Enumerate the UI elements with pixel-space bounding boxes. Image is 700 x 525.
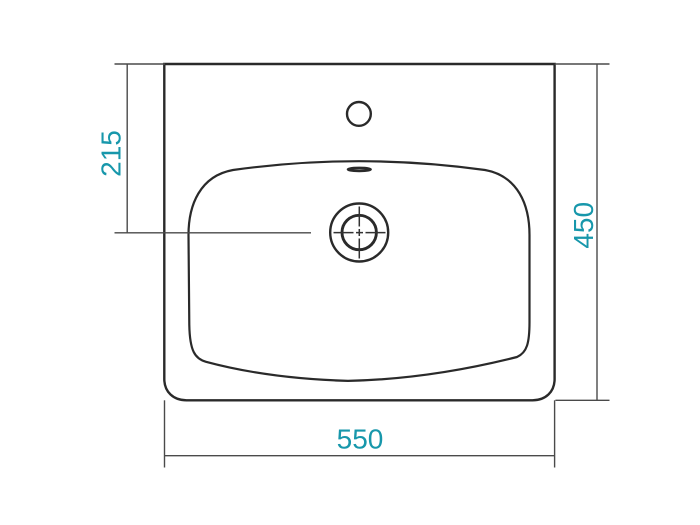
svg-text:550: 550 <box>337 423 384 454</box>
svg-text:450: 450 <box>568 202 599 249</box>
svg-text:215: 215 <box>96 130 127 177</box>
